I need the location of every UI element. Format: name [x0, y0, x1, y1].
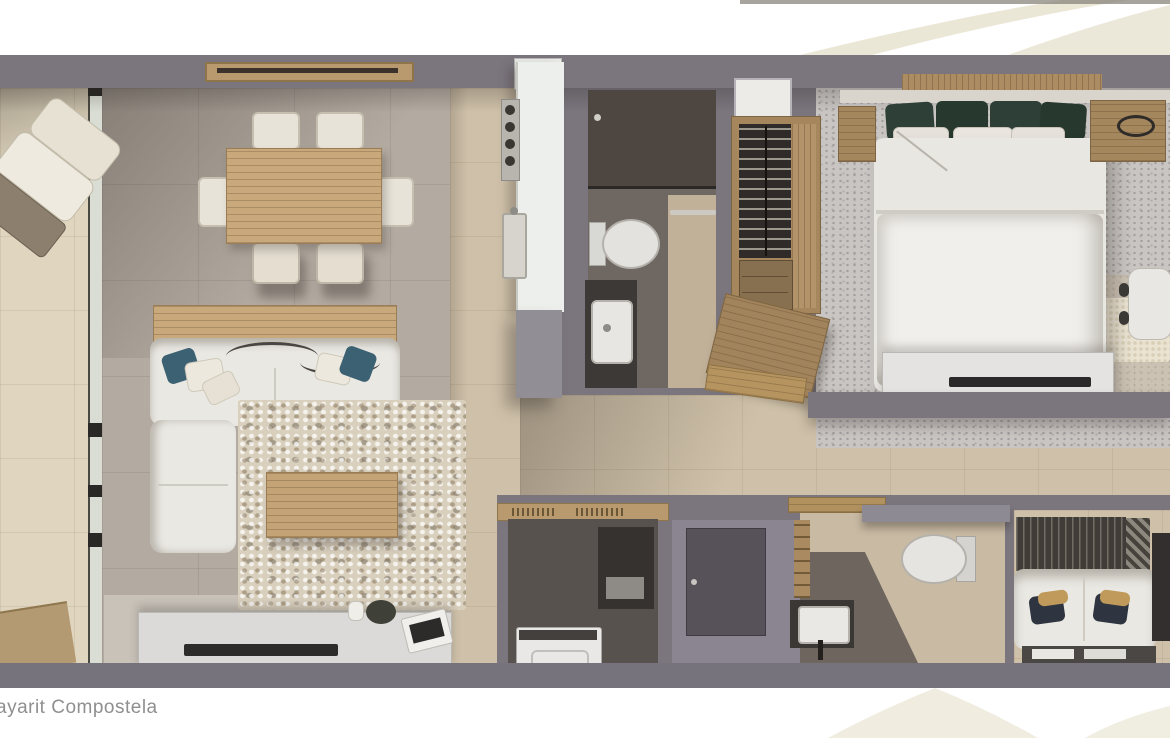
- door-knob: [691, 579, 697, 585]
- chair-arm: [1119, 311, 1129, 325]
- table-tray: [1032, 649, 1074, 659]
- cooktop-burner: [505, 122, 515, 132]
- laundry-interior: [508, 519, 658, 663]
- shelf-item: [606, 577, 644, 599]
- dining-table: [226, 148, 382, 244]
- kitchen-peninsula: [516, 310, 562, 398]
- towel-bar: [670, 210, 716, 215]
- vanity-sink: [591, 300, 633, 364]
- shower: [588, 90, 716, 187]
- bottom-outer-wall: [0, 663, 1170, 688]
- table-lamp: [1117, 115, 1155, 137]
- sink2-faucet: [818, 640, 823, 660]
- drawer-line: [742, 276, 788, 277]
- bathroom2-shelf: [862, 505, 1010, 522]
- laptop-screen: [409, 617, 445, 643]
- shower-drain: [594, 114, 601, 121]
- den-coffee-table: [1022, 646, 1156, 663]
- toilet2-bowl: [901, 534, 967, 584]
- decor-plant: [366, 600, 396, 624]
- cooktop: [501, 99, 520, 181]
- dining-chair: [252, 112, 300, 150]
- cooktop-burner: [505, 139, 515, 149]
- wardrobe: [731, 116, 821, 314]
- dining-wall-vent: [205, 62, 414, 82]
- hallway-shadow: [520, 395, 850, 510]
- counter-vent: [576, 508, 624, 516]
- towel-ladder: [794, 520, 810, 598]
- dining-chair: [252, 242, 300, 284]
- laundry-shelf-unit: [598, 527, 654, 609]
- desk-chair: [1128, 268, 1170, 340]
- coffee-table: [266, 472, 398, 538]
- dining-chair: [316, 242, 364, 284]
- vent-slot: [217, 68, 398, 73]
- den-loveseat: [1014, 569, 1156, 649]
- bathroom-vanity: [585, 280, 637, 388]
- bed-headboard-shelf: [902, 74, 1102, 90]
- top-margin-band: [0, 0, 1170, 55]
- toilet-bowl: [602, 219, 660, 269]
- closet-window-box: [734, 78, 792, 120]
- decor-vases: [348, 601, 364, 621]
- nightstand-left: [838, 106, 876, 162]
- nightstand-right: [1090, 100, 1166, 162]
- counter-vent: [512, 508, 554, 516]
- den-chevron-panel: [1126, 518, 1150, 570]
- cooktop-burner: [505, 105, 515, 115]
- entry-room-floor: [672, 520, 800, 663]
- apartment-plan: [0, 55, 1170, 688]
- bedroom-south-wall: [808, 392, 1170, 418]
- chaise-cushion-seam: [158, 484, 228, 486]
- drawer-line: [742, 292, 788, 293]
- dining-chair: [316, 112, 364, 150]
- den-slat-accent-wall: [1016, 517, 1126, 571]
- den-tv-panel: [1152, 533, 1170, 641]
- wardrobe-hanging-clothes: [739, 124, 791, 258]
- tv-screen: [184, 644, 338, 656]
- bottom-margin-band: ayarit Compostela: [0, 688, 1170, 738]
- bathroom2-vanity: [790, 600, 854, 648]
- sink-faucet: [510, 207, 518, 215]
- kitchen-sink: [502, 213, 527, 279]
- brand-swoosh-watermark-bottom: [0, 688, 1170, 738]
- wardrobe-side-panel: [792, 124, 816, 308]
- sofa-chaise: [150, 420, 236, 553]
- entry-door: [686, 528, 766, 636]
- den-cushion-gold: [1037, 589, 1069, 607]
- floorplan-render: ayarit Compostela: [0, 0, 1170, 738]
- washer-control-panel: [519, 630, 597, 640]
- cooktop-burner: [505, 156, 515, 166]
- table-tray: [1084, 649, 1126, 659]
- bedroom-tv: [949, 377, 1091, 387]
- loveseat-seam: [1083, 577, 1085, 641]
- vanity2-sink: [798, 606, 850, 644]
- watermark-caption: ayarit Compostela: [0, 697, 158, 719]
- sink-faucet: [603, 324, 611, 332]
- chair-arm: [1119, 283, 1129, 297]
- brand-swoosh-watermark: [0, 0, 1170, 55]
